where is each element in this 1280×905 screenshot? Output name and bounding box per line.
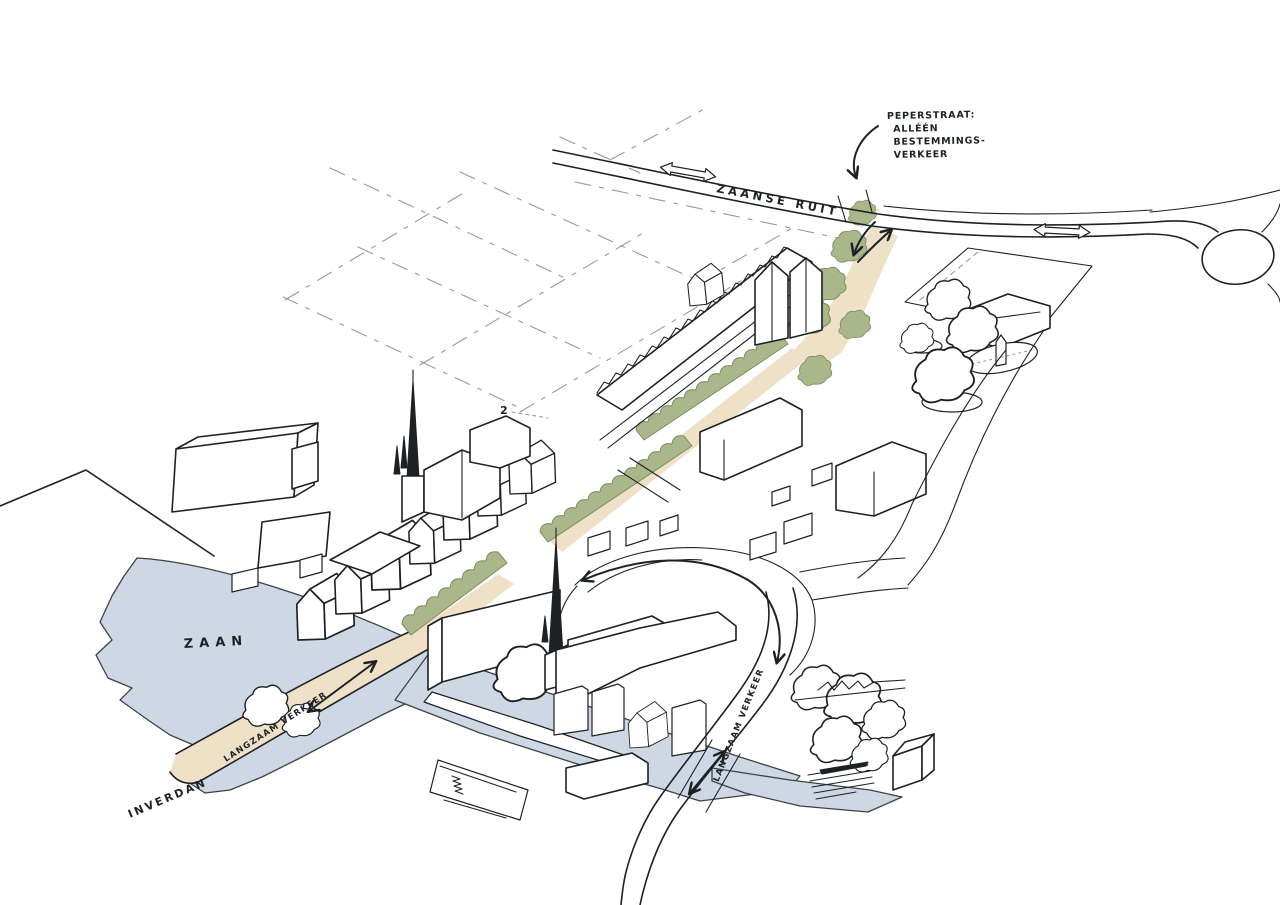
center-buildings — [428, 528, 676, 701]
peperstraat-annotation: PEPERSTRAAT: ALLÉÉN BESTEMMINGS- VERKEER — [887, 109, 986, 161]
two-way-road-arrow-icon — [659, 161, 716, 184]
svg-text:BESTEMMINGS-: BESTEMMINGS- — [893, 135, 985, 148]
svg-text:PEPERSTRAAT:: PEPERSTRAAT: — [887, 109, 975, 122]
floors-note: 2 — [500, 404, 508, 417]
inverdan-label: INVERDAN — [126, 776, 209, 821]
roundabout — [1199, 225, 1278, 288]
svg-text:VERKEER: VERKEER — [894, 149, 949, 161]
urban-plan-sketch: ZAANSE RUIT PEPERSTRAAT: ALLÉÉN BESTEMMI… — [0, 0, 1280, 905]
annotation-pointer-arrow-icon — [854, 126, 878, 177]
svg-text:ALLÉÉN: ALLÉÉN — [893, 122, 938, 135]
harbor-inlet — [712, 768, 902, 812]
plaza — [556, 513, 815, 698]
church-spire-icon — [407, 380, 419, 478]
sketch-page: ZAANSE RUIT PEPERSTRAAT: ALLÉÉN BESTEMMI… — [0, 0, 1280, 905]
